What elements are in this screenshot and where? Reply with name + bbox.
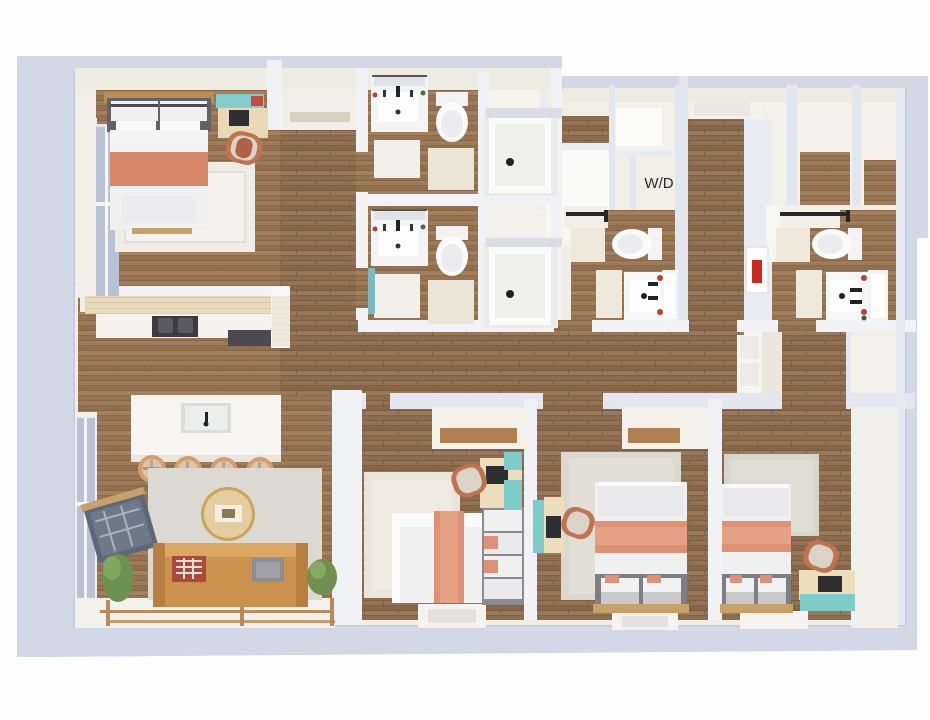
svg-text:W/D: W/D: [644, 175, 673, 192]
